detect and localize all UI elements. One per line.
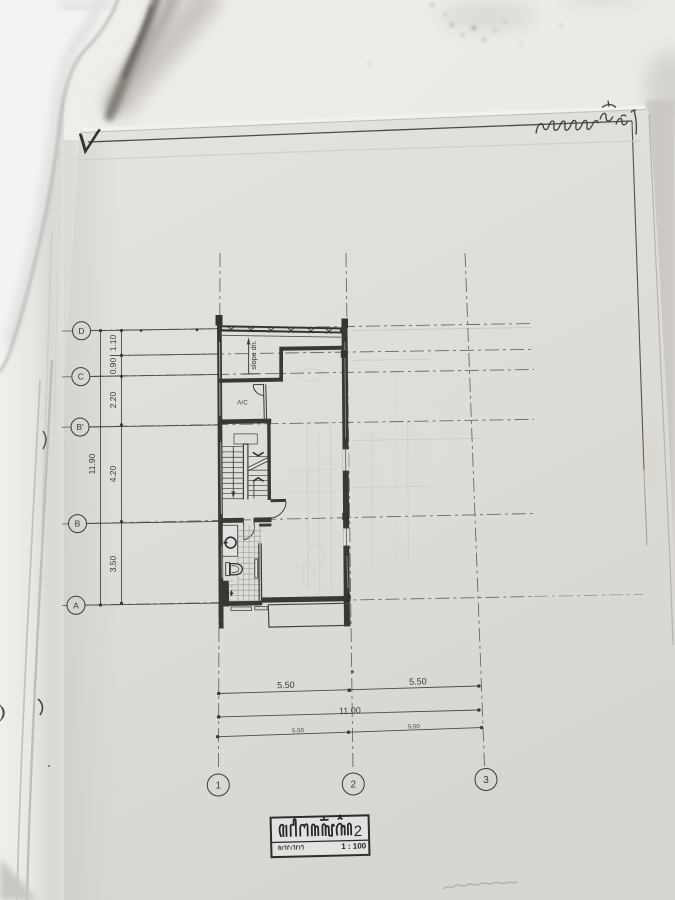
svg-text:3.50: 3.50	[108, 555, 118, 572]
svg-text:5.50: 5.50	[277, 680, 295, 690]
svg-text:2: 2	[354, 823, 363, 840]
svg-text:5.50: 5.50	[408, 724, 421, 730]
svg-text:11.90: 11.90	[87, 453, 97, 474]
svg-text:2.20: 2.20	[108, 391, 118, 408]
svg-text:1 : 100: 1 : 100	[341, 841, 367, 851]
svg-text:1.10: 1.10	[108, 334, 118, 351]
svg-text:0.90: 0.90	[108, 357, 118, 374]
svg-text:5.50: 5.50	[409, 676, 427, 686]
svg-text:4.20: 4.20	[108, 465, 118, 482]
svg-text:11.00: 11.00	[339, 705, 361, 716]
svg-text:B: B	[75, 519, 81, 529]
svg-text:3: 3	[483, 775, 489, 786]
svg-text:A/C: A/C	[237, 400, 248, 407]
svg-text:B′: B′	[76, 422, 84, 432]
svg-text:5.50: 5.50	[292, 728, 305, 734]
svg-text:slope dn.: slope dn.	[249, 340, 258, 369]
svg-text:2: 2	[351, 780, 357, 791]
svg-text:1: 1	[216, 781, 222, 792]
svg-text:A: A	[73, 600, 79, 610]
svg-text:C: C	[78, 372, 84, 382]
svg-text:D: D	[78, 326, 84, 336]
